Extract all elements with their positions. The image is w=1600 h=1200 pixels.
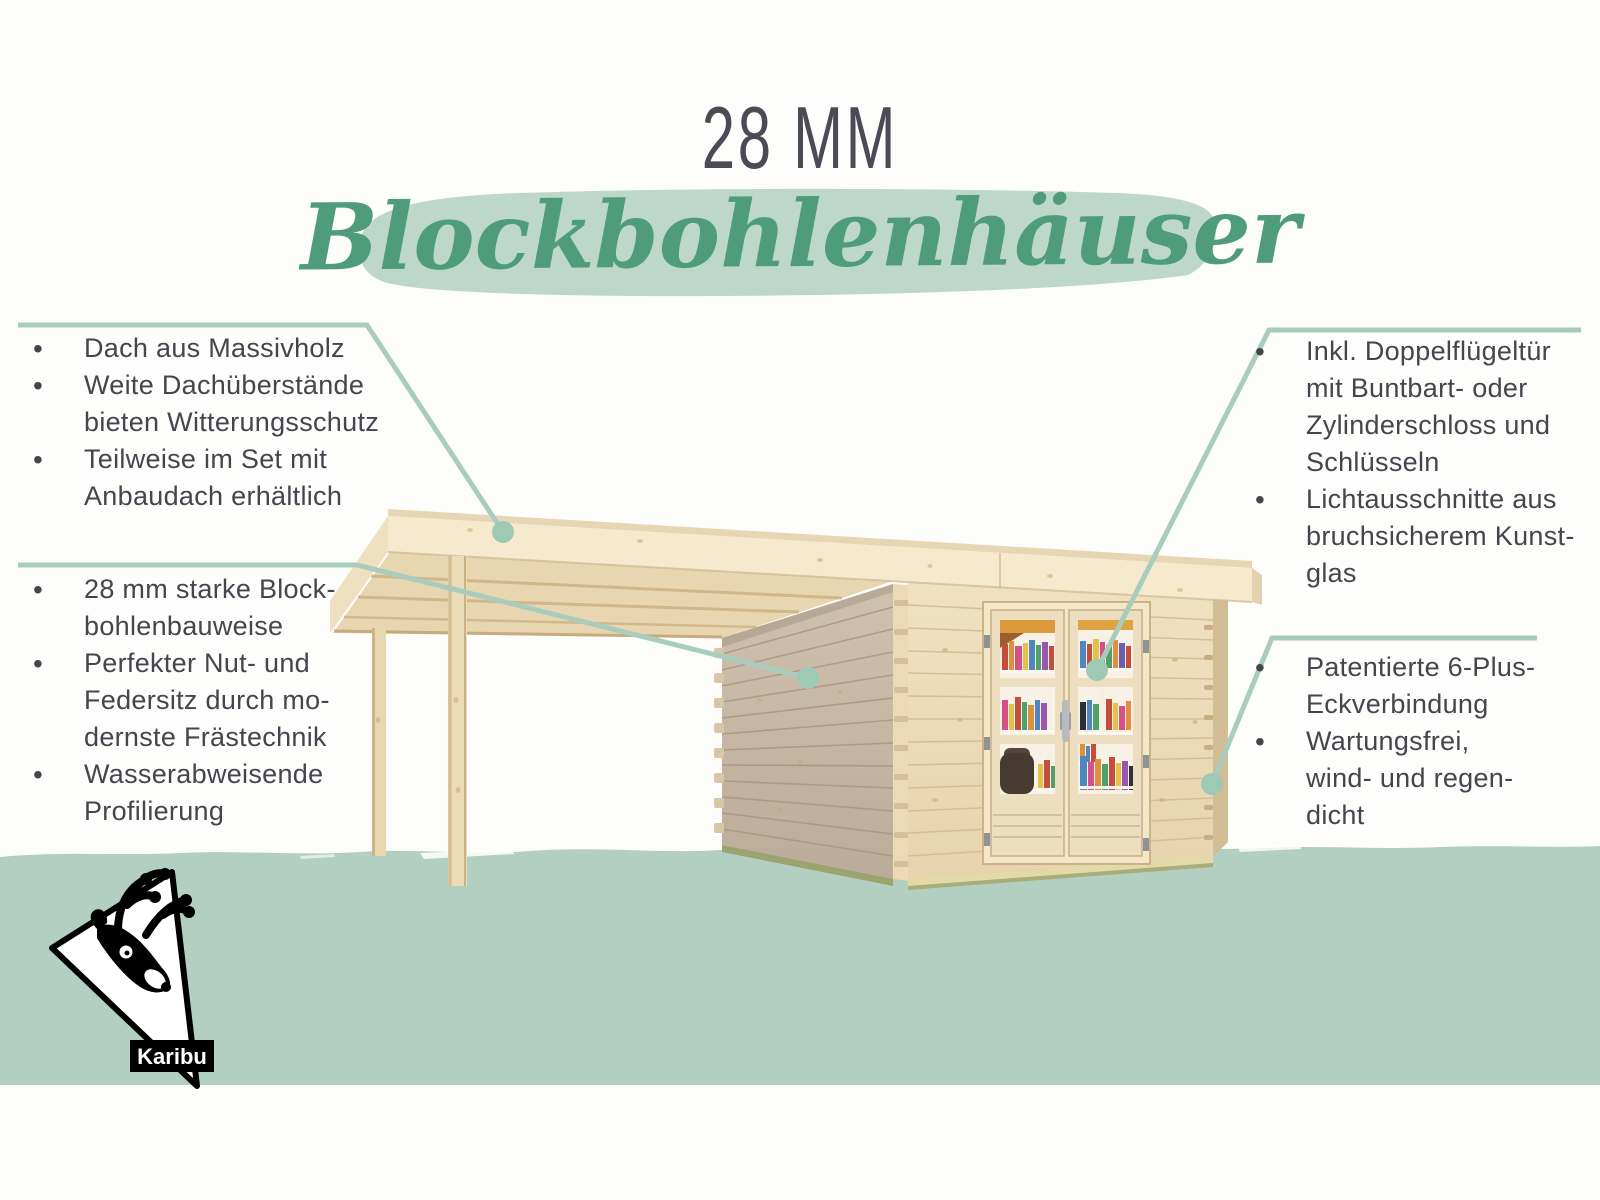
feature-line: Lichtausschnitte aus (1306, 481, 1596, 518)
double-door (983, 602, 1150, 864)
feature-list-corner: Patentierte 6-Plus- Eckverbindung Wartun… (1246, 649, 1596, 834)
callout-dot-roof (492, 521, 514, 543)
list-item: Teilweise im Set mit Anbaudach erhältlic… (24, 441, 384, 515)
feature-line: mit Buntbart- oder (1306, 370, 1596, 407)
feature-line: Federsitz durch mo- (84, 682, 384, 719)
feature-line: 28 mm starke Block- (84, 571, 384, 608)
headline-title: Blockbohlenhäuser (250, 168, 1351, 300)
feature-line: Wasserabweisende (84, 756, 384, 793)
callout-dot-corner (1201, 773, 1223, 795)
door-handle (1062, 700, 1069, 742)
feature-line: Zylinderschloss und (1306, 407, 1596, 444)
feature-line: glas (1306, 555, 1596, 592)
bullet-dot (1246, 649, 1306, 723)
poster: Karibu 28 MM Blockbohlenhäuser Dach aus … (0, 0, 1600, 1200)
bullet-dot (1246, 333, 1306, 481)
feature-line: Teilweise im Set mit (84, 441, 384, 478)
bullet-dot (24, 441, 84, 515)
feature-line: bohlenbauweise (84, 608, 384, 645)
feature-line: dicht (1306, 797, 1596, 834)
feature-line: Dach aus Massivholz (84, 330, 384, 367)
feature-line: bruchsicherem Kunst- (1306, 518, 1596, 555)
list-item: Perfekter Nut- und Federsitz durch mo- d… (24, 645, 384, 756)
list-item: Patentierte 6-Plus- Eckverbindung (1246, 649, 1596, 723)
corner-joint-left (893, 584, 910, 881)
callout-dot-door (1086, 659, 1108, 681)
list-item: 28 mm starke Block- bohlenbauweise (24, 571, 384, 645)
list-item: Wartungsfrei, wind- und regen- dicht (1246, 723, 1596, 834)
list-item: Lichtausschnitte aus bruchsicherem Kunst… (1246, 481, 1596, 592)
canopy-post-front (448, 556, 467, 886)
feature-line: bieten Witterungsschutz (84, 404, 384, 441)
feature-line: Inkl. Doppelflügeltür (1306, 333, 1596, 370)
list-item: Inkl. Doppelflügeltür mit Buntbart- oder… (1246, 333, 1596, 481)
headline-size: 28 MM (460, 94, 1140, 182)
feature-line: Eckverbindung (1306, 686, 1596, 723)
callout-dot-wall (797, 667, 819, 689)
bullet-dot (24, 645, 84, 756)
bullet-dot (24, 756, 84, 830)
bullet-dot (24, 330, 84, 367)
bullet-dot (24, 571, 84, 645)
feature-line: wind- und regen- (1306, 760, 1596, 797)
bullet-dot (24, 367, 84, 441)
feature-line: Profilierung (84, 793, 384, 830)
list-item: Dach aus Massivholz (24, 330, 384, 367)
feature-line: Patentierte 6-Plus- (1306, 649, 1596, 686)
feature-line: Perfekter Nut- und (84, 645, 384, 682)
feature-line: dernste Frästechnik (84, 719, 384, 756)
ground-band (0, 845, 1600, 1085)
feature-list-construction: 28 mm starke Block- bohlenbauweise Perfe… (24, 571, 384, 830)
feature-line: Schlüsseln (1306, 444, 1596, 481)
bullet-dot (1246, 481, 1306, 592)
feature-list-door: Inkl. Doppelflügeltür mit Buntbart- oder… (1246, 333, 1596, 592)
feature-line: Wartungsfrei, (1306, 723, 1596, 760)
list-item: Wasserabweisende Profilierung (24, 756, 384, 830)
logo-wordmark: Karibu (137, 1044, 207, 1069)
feature-line: Weite Dachüberstände (84, 367, 384, 404)
feature-line: Anbaudach erhältlich (84, 478, 384, 515)
right-side-face (1213, 594, 1228, 857)
feature-list-roof: Dach aus Massivholz Weite Dachüberstände… (24, 330, 384, 515)
bullet-dot (1246, 723, 1306, 834)
list-item: Weite Dachüberstände bieten Witterungssc… (24, 367, 384, 441)
